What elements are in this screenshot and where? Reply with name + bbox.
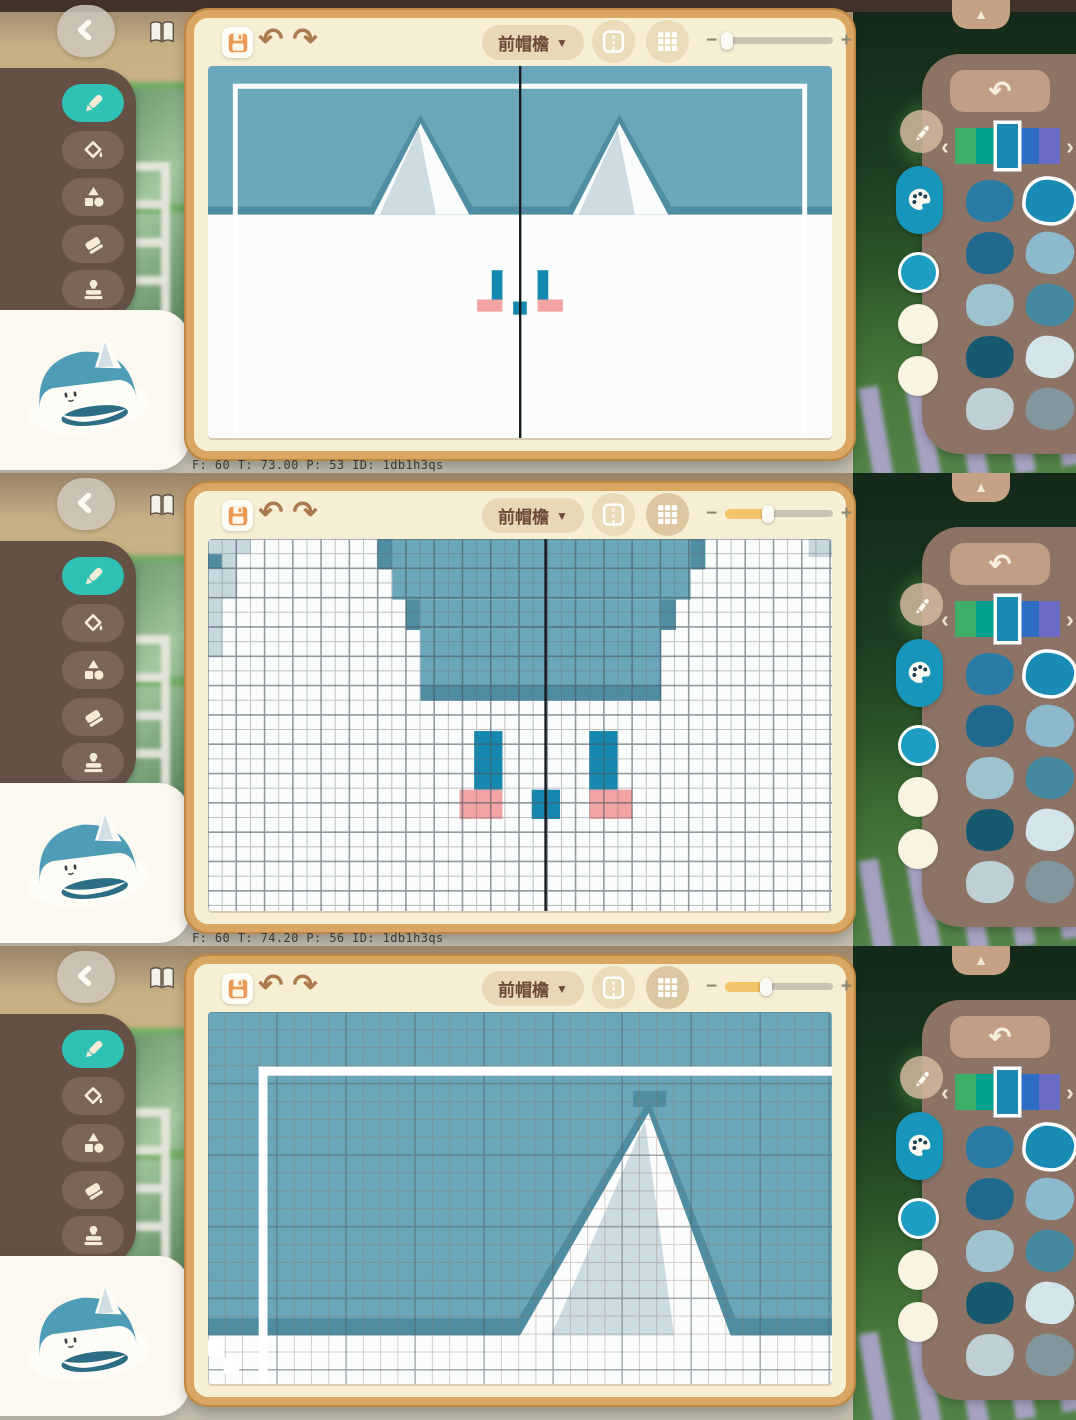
color-swatch[interactable] <box>1024 651 1076 698</box>
pixel-canvas[interactable] <box>208 1012 832 1384</box>
hue-segment[interactable] <box>955 128 976 164</box>
color-swatch[interactable] <box>1024 178 1076 225</box>
color-swatch[interactable] <box>1024 1176 1076 1223</box>
color-swatch[interactable] <box>964 1280 1015 1326</box>
tools-panel <box>0 1014 136 1266</box>
hat-preview-image <box>2 782 169 936</box>
manual-book-button[interactable] <box>142 15 182 51</box>
mirror-icon <box>600 28 627 55</box>
undo-button[interactable]: ↶ <box>254 20 288 60</box>
marker-icon <box>910 120 934 144</box>
zoom-slider-handle[interactable] <box>721 32 733 50</box>
design-preview-card <box>0 783 190 943</box>
paint-bucket-icon <box>80 137 107 164</box>
zoom-in-button[interactable]: + <box>841 504 852 523</box>
stamp-tool-button[interactable] <box>62 743 124 781</box>
swatch-grid <box>966 1126 1076 1376</box>
color-swatch[interactable] <box>1024 703 1076 750</box>
color-swatch[interactable] <box>964 651 1015 697</box>
grid-toggle-button[interactable] <box>646 966 689 1009</box>
color-swatch[interactable] <box>964 755 1015 801</box>
manual-book-button[interactable] <box>142 961 182 997</box>
back-arrow-icon <box>74 964 98 991</box>
hue-segment[interactable] <box>1039 1074 1060 1110</box>
collapse-panel-button[interactable]: ▲ <box>952 0 1010 29</box>
hue-segment[interactable] <box>1018 601 1039 637</box>
book-icon <box>146 490 178 523</box>
color-swatch[interactable] <box>1024 1280 1076 1327</box>
hue-next-button[interactable]: › <box>1063 601 1076 637</box>
save-button[interactable] <box>222 500 253 531</box>
book-icon <box>146 17 178 50</box>
editor-card: ↶ ↷ 前帽檐 ▼ − + <box>186 10 854 459</box>
color-swatch[interactable] <box>964 334 1015 380</box>
hue-strip <box>955 601 1060 637</box>
palette-icon <box>905 185 935 215</box>
zoom-out-button[interactable]: − <box>706 31 717 50</box>
palette-icon <box>905 1131 935 1161</box>
zoom-control: − + <box>706 504 852 523</box>
palette-mode-button[interactable] <box>896 639 943 707</box>
hue-segment[interactable] <box>1018 128 1039 164</box>
marker-icon <box>910 1066 934 1090</box>
section-dropdown[interactable]: 前帽檐 ▼ <box>482 498 584 533</box>
editor-topbar: ↶ ↷ 前帽檐 ▼ − + <box>194 491 846 539</box>
eraser-tool-button[interactable] <box>62 225 124 263</box>
zoom-out-button[interactable]: − <box>706 977 717 996</box>
pencil-tool-button[interactable] <box>62 557 124 595</box>
hue-segment[interactable] <box>976 601 997 637</box>
redo-button[interactable]: ↷ <box>288 966 322 1006</box>
undo-button[interactable]: ↶ <box>254 493 288 533</box>
color-swatch[interactable] <box>1024 1124 1076 1171</box>
palette-undo-button[interactable]: ↶ <box>950 543 1050 585</box>
shapes-icon <box>80 657 107 684</box>
palette-mode-button[interactable] <box>896 1112 943 1180</box>
zoom-control: − + <box>706 977 852 996</box>
section-dropdown[interactable]: 前帽檐 ▼ <box>482 971 584 1006</box>
pencil-icon <box>80 1036 107 1063</box>
current-color-button[interactable] <box>898 252 939 293</box>
section-label: 前帽檐 <box>498 30 549 55</box>
collapse-panel-button[interactable]: ▲ <box>952 946 1010 975</box>
save-button[interactable] <box>222 973 253 1004</box>
tools-panel <box>0 541 136 793</box>
zoom-slider-handle[interactable] <box>762 505 774 523</box>
eraser-icon <box>80 1177 107 1204</box>
hue-segment[interactable] <box>955 1074 976 1110</box>
palette-panel: ↶ ‹ › <box>922 54 1076 454</box>
back-button[interactable] <box>57 951 115 1003</box>
dropdown-caret-icon: ▼ <box>556 509 568 523</box>
frames-root: ↶ ↷ 前帽檐 ▼ − + <box>0 0 1076 1420</box>
color-swatch[interactable] <box>1024 755 1076 802</box>
palette-panel: ↶ ‹ › <box>922 1000 1076 1400</box>
color-swatch[interactable] <box>964 1332 1015 1378</box>
dropdown-caret-icon: ▼ <box>556 982 568 996</box>
color-swatch[interactable] <box>964 807 1015 853</box>
marker-tool-button[interactable] <box>900 110 943 153</box>
mirror-toggle-button[interactable] <box>592 493 635 536</box>
palette-undo-button[interactable]: ↶ <box>950 70 1050 112</box>
design-preview-card <box>0 310 190 470</box>
zoom-in-button[interactable]: + <box>841 31 852 50</box>
paint-bucket-tool-button[interactable] <box>62 131 124 169</box>
floppy-disk-icon <box>226 31 250 55</box>
marker-tool-button[interactable] <box>900 583 943 626</box>
color-swatch[interactable] <box>1024 282 1076 329</box>
palette-panel: ↶ ‹ › <box>922 527 1076 927</box>
hat-preview-image <box>2 1255 169 1409</box>
manual-book-button[interactable] <box>142 488 182 524</box>
back-button[interactable] <box>57 5 115 57</box>
recent-color-1[interactable] <box>898 304 938 344</box>
hue-strip <box>955 128 1060 164</box>
shapes-tool-button[interactable] <box>62 178 124 216</box>
recent-color-2[interactable] <box>898 1302 938 1342</box>
mirror-toggle-button[interactable] <box>592 966 635 1009</box>
recent-color-2[interactable] <box>898 829 938 869</box>
paint-bucket-icon <box>80 610 107 637</box>
stamp-icon <box>80 276 107 303</box>
grid-toggle-button[interactable] <box>646 493 689 536</box>
zoom-in-button[interactable]: + <box>841 977 852 996</box>
stamp-icon <box>80 1222 107 1249</box>
mirror-icon <box>600 501 627 528</box>
section-label: 前帽檐 <box>498 503 549 528</box>
hue-row: ‹ › <box>938 1074 1076 1110</box>
current-color-button[interactable] <box>898 1198 939 1239</box>
recent-color-1[interactable] <box>898 777 938 817</box>
editor-topbar: ↶ ↷ 前帽檐 ▼ − + <box>194 964 846 1012</box>
color-swatch[interactable] <box>1024 334 1076 381</box>
shapes-tool-button[interactable] <box>62 1124 124 1162</box>
grid-icon <box>654 28 681 55</box>
color-swatch[interactable] <box>1024 807 1076 854</box>
hue-next-button[interactable]: › <box>1063 128 1076 164</box>
floppy-disk-icon <box>226 504 250 528</box>
stamp-tool-button[interactable] <box>62 1216 124 1254</box>
editor-card: ↶ ↷ 前帽檐 ▼ − + <box>186 483 854 932</box>
hue-segment[interactable] <box>1039 601 1060 637</box>
eraser-icon <box>80 231 107 258</box>
hue-segment[interactable] <box>1039 128 1060 164</box>
zoom-control: − + <box>706 31 852 50</box>
shapes-icon <box>80 184 107 211</box>
zoom-slider[interactable] <box>725 510 833 517</box>
pencil-tool-button[interactable] <box>62 84 124 122</box>
eraser-tool-button[interactable] <box>62 1171 124 1209</box>
redo-button[interactable]: ↷ <box>288 493 322 533</box>
pencil-tool-button[interactable] <box>62 1030 124 1068</box>
grid-toggle-button[interactable] <box>646 20 689 63</box>
mirror-toggle-button[interactable] <box>592 20 635 63</box>
paint-bucket-tool-button[interactable] <box>62 604 124 642</box>
hue-strip <box>955 1074 1060 1110</box>
editor-topbar: ↶ ↷ 前帽檐 ▼ − + <box>194 18 846 66</box>
pixel-canvas-art <box>208 539 832 911</box>
color-swatch[interactable] <box>1024 386 1076 433</box>
zoom-out-button[interactable]: − <box>706 504 717 523</box>
floppy-disk-icon <box>226 977 250 1001</box>
color-swatch[interactable] <box>964 1176 1015 1222</box>
dropdown-caret-icon: ▼ <box>556 36 568 50</box>
zoom-slider[interactable] <box>725 37 833 44</box>
color-swatch[interactable] <box>964 178 1015 224</box>
undo-button[interactable]: ↶ <box>254 966 288 1006</box>
tools-panel <box>0 68 136 320</box>
mirror-icon <box>600 974 627 1001</box>
editor-screenshot-frame: ↶ ↷ 前帽檐 ▼ − + <box>0 473 1076 946</box>
swatch-grid <box>966 180 1076 430</box>
zoom-slider[interactable] <box>725 983 833 990</box>
back-arrow-icon <box>74 18 98 45</box>
shapes-icon <box>80 1130 107 1157</box>
eraser-icon <box>80 704 107 731</box>
color-swatch[interactable] <box>964 703 1015 749</box>
hue-segment[interactable] <box>997 1070 1018 1114</box>
palette-undo-button[interactable]: ↶ <box>950 1016 1050 1058</box>
pencil-icon <box>80 563 107 590</box>
current-color-button[interactable] <box>898 725 939 766</box>
palette-mode-button[interactable] <box>896 166 943 234</box>
recent-color-2[interactable] <box>898 356 938 396</box>
recent-color-1[interactable] <box>898 1250 938 1290</box>
palette-icon <box>905 658 935 688</box>
color-swatch[interactable] <box>964 1228 1015 1274</box>
hue-segment[interactable] <box>976 1074 997 1110</box>
color-swatch[interactable] <box>1024 1332 1076 1379</box>
color-swatch[interactable] <box>964 386 1015 432</box>
hat-preview-image <box>2 309 169 463</box>
editor-card: ↶ ↷ 前帽檐 ▼ − + <box>186 956 854 1405</box>
hue-row: ‹ › <box>938 601 1076 637</box>
book-icon <box>146 963 178 996</box>
pixel-canvas[interactable] <box>208 539 832 911</box>
shapes-tool-button[interactable] <box>62 651 124 689</box>
marker-icon <box>910 593 934 617</box>
capture-stats-overlay: F: 60 T: 74.20 P: 56 ID: 1db1h3qs <box>192 931 444 945</box>
stamp-tool-button[interactable] <box>62 270 124 308</box>
color-swatch[interactable] <box>1024 859 1076 906</box>
grid-icon <box>654 501 681 528</box>
capture-stats-overlay: F: 60 T: 73.00 P: 53 ID: 1db1h3qs <box>192 458 444 472</box>
hue-row: ‹ › <box>938 128 1076 164</box>
hue-segment[interactable] <box>997 597 1018 641</box>
back-arrow-icon <box>74 491 98 518</box>
color-swatch[interactable] <box>964 282 1015 328</box>
collapse-panel-button[interactable]: ▲ <box>952 473 1010 502</box>
back-button[interactable] <box>57 478 115 530</box>
design-preview-card <box>0 1256 190 1416</box>
color-swatch[interactable] <box>1024 1228 1076 1275</box>
color-swatch[interactable] <box>1024 230 1076 277</box>
save-button[interactable] <box>222 27 253 58</box>
paint-bucket-tool-button[interactable] <box>62 1077 124 1115</box>
paint-bucket-icon <box>80 1083 107 1110</box>
hue-segment[interactable] <box>955 601 976 637</box>
grid-icon <box>654 974 681 1001</box>
editor-screenshot-frame: ↶ ↷ 前帽檐 ▼ − + <box>0 946 1076 1420</box>
marker-tool-button[interactable] <box>900 1056 943 1099</box>
color-swatch[interactable] <box>964 859 1015 905</box>
color-swatch[interactable] <box>964 230 1015 276</box>
hue-segment[interactable] <box>997 124 1018 168</box>
hue-segment[interactable] <box>1018 1074 1039 1110</box>
section-dropdown[interactable]: 前帽檐 ▼ <box>482 25 584 60</box>
hue-segment[interactable] <box>976 128 997 164</box>
redo-button[interactable]: ↷ <box>288 20 322 60</box>
swatch-grid <box>966 653 1076 903</box>
stamp-icon <box>80 749 107 776</box>
section-label: 前帽檐 <box>498 976 549 1001</box>
color-swatch[interactable] <box>964 1124 1015 1170</box>
pixel-canvas[interactable] <box>208 66 832 438</box>
pixel-canvas-art <box>208 66 832 438</box>
editor-screenshot-frame: ↶ ↷ 前帽檐 ▼ − + <box>0 0 1076 473</box>
pencil-icon <box>80 90 107 117</box>
zoom-slider-handle[interactable] <box>760 978 772 996</box>
hue-next-button[interactable]: › <box>1063 1074 1076 1110</box>
pixel-canvas-art <box>208 1012 832 1384</box>
eraser-tool-button[interactable] <box>62 698 124 736</box>
